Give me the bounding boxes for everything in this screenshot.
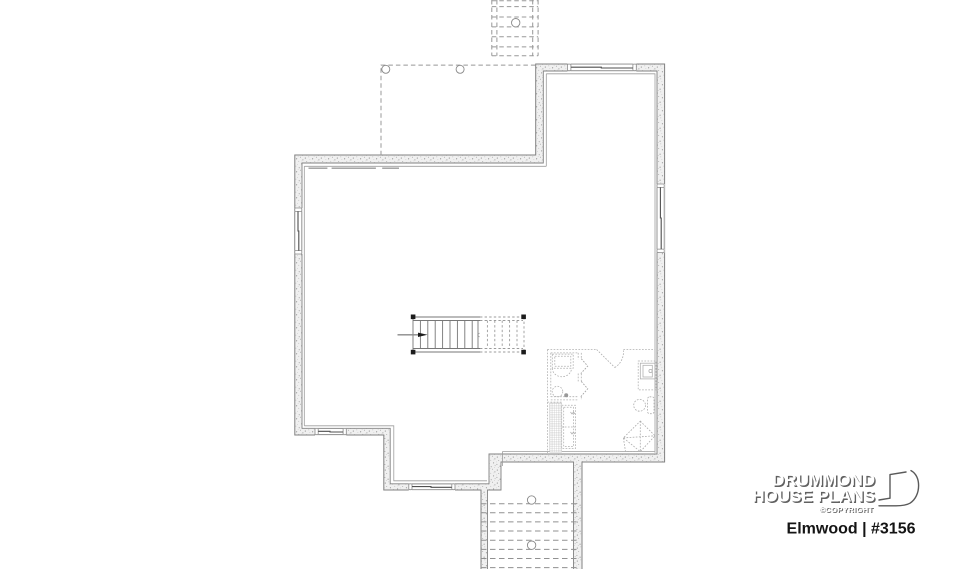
svg-text:©COPYRIGHT: ©COPYRIGHT [819, 505, 873, 514]
svg-text:HOUSE PLANS: HOUSE PLANS [752, 487, 875, 506]
svg-text:Elmwood | #3156: Elmwood | #3156 [787, 521, 916, 538]
